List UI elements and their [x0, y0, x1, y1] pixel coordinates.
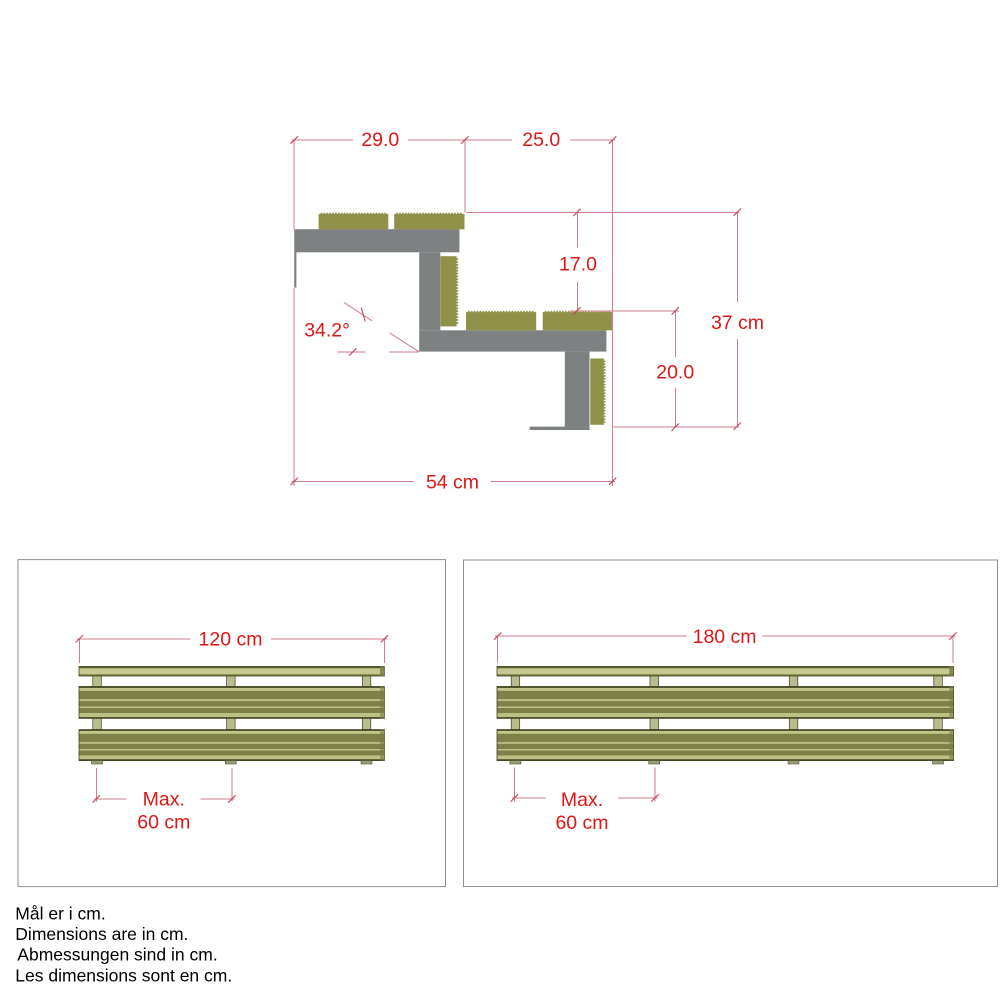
svg-text:29.0: 29.0 [361, 129, 399, 151]
svg-text:34.2°: 34.2° [304, 319, 350, 341]
svg-text:Abmessungen sind in cm.: Abmessungen sind in cm. [17, 945, 217, 965]
svg-text:25.0: 25.0 [522, 129, 560, 151]
svg-text:Max.: Max. [561, 789, 603, 811]
svg-text:Mål er i cm.: Mål er i cm. [15, 904, 105, 924]
svg-text:120 cm: 120 cm [199, 629, 263, 651]
svg-text:17.0: 17.0 [559, 254, 597, 276]
svg-text:60 cm: 60 cm [555, 812, 608, 834]
svg-text:180 cm: 180 cm [693, 626, 757, 648]
svg-text:Max.: Max. [143, 789, 185, 811]
svg-text:Dimensions are in cm.: Dimensions are in cm. [15, 924, 188, 944]
svg-text:54 cm: 54 cm [426, 472, 479, 494]
svg-text:60 cm: 60 cm [137, 812, 190, 834]
svg-text:Les dimensions sont en cm.: Les dimensions sont en cm. [15, 965, 232, 985]
svg-text:37 cm: 37 cm [711, 312, 764, 334]
svg-text:20.0: 20.0 [656, 361, 694, 383]
